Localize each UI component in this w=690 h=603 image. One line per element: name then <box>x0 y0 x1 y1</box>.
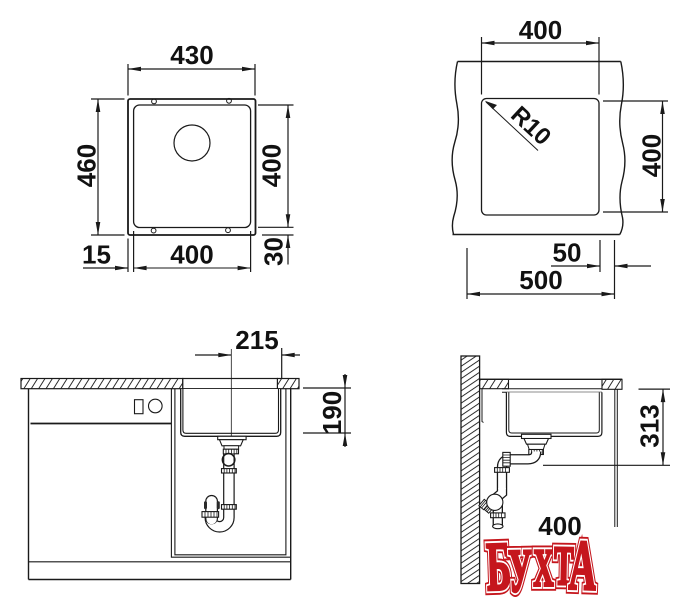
svg-text:50: 50 <box>553 238 582 268</box>
svg-text:400: 400 <box>257 144 287 187</box>
svg-text:313: 313 <box>635 404 665 447</box>
svg-text:30: 30 <box>259 237 289 266</box>
svg-text:15: 15 <box>82 240 111 270</box>
svg-text:430: 430 <box>170 40 213 70</box>
svg-text:400: 400 <box>170 240 213 270</box>
svg-text:400: 400 <box>637 134 667 177</box>
svg-text:У: У <box>508 537 533 603</box>
svg-text:500: 500 <box>519 265 562 295</box>
svg-text:А: А <box>568 526 598 603</box>
svg-text:Х: Х <box>533 539 554 598</box>
svg-text:215: 215 <box>235 325 278 355</box>
svg-text:400: 400 <box>519 15 562 45</box>
svg-text:460: 460 <box>72 144 102 187</box>
svg-text:190: 190 <box>317 391 347 434</box>
